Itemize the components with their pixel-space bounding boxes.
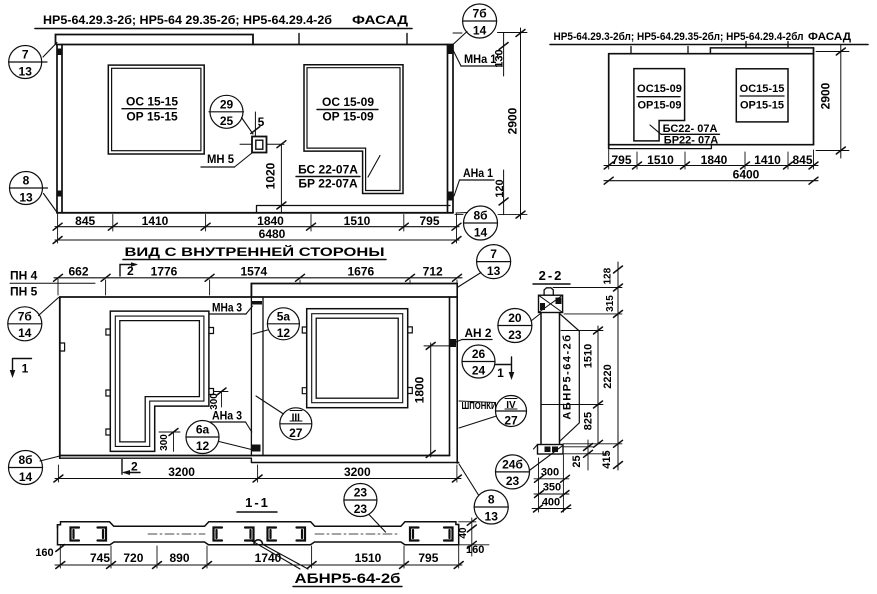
- svg-text:825: 825: [583, 412, 595, 430]
- svg-text:1020: 1020: [264, 162, 278, 189]
- svg-text:350: 350: [543, 482, 561, 494]
- svg-text:БС 22-07А: БС 22-07А: [298, 163, 358, 177]
- svg-text:29: 29: [220, 98, 234, 112]
- svg-text:7б: 7б: [473, 7, 487, 21]
- svg-text:14: 14: [19, 470, 33, 484]
- svg-text:300: 300: [541, 467, 559, 479]
- svg-text:13: 13: [19, 191, 33, 205]
- svg-text:12: 12: [277, 326, 291, 340]
- svg-text:НР5-64.29.3-2бл; НР5-64.29.35-: НР5-64.29.3-2бл; НР5-64.29.35-2бл; НР5-6…: [554, 31, 804, 43]
- svg-text:2-2: 2-2: [539, 268, 564, 283]
- svg-text:1510: 1510: [583, 344, 595, 368]
- svg-text:27: 27: [504, 414, 518, 428]
- svg-text:6480: 6480: [259, 227, 286, 241]
- svg-text:12: 12: [196, 439, 210, 453]
- svg-text:25: 25: [220, 114, 234, 128]
- svg-text:МНа 1': МНа 1': [464, 52, 499, 66]
- svg-text:845: 845: [75, 214, 95, 228]
- svg-text:14: 14: [473, 24, 487, 38]
- svg-text:БС22- 07А: БС22- 07А: [663, 123, 718, 135]
- svg-text:1510: 1510: [344, 214, 371, 228]
- svg-text:НР5-64.29.3-2б; НР5-64 29.35-2: НР5-64.29.3-2б; НР5-64 29.35-2б; НР5-64.…: [43, 13, 332, 27]
- svg-text:1: 1: [22, 362, 29, 376]
- svg-text:14: 14: [474, 226, 488, 240]
- svg-text:АБНР5-64-2б: АБНР5-64-2б: [562, 333, 574, 419]
- svg-text:ВИД С ВНУТРЕННЕЙ СТОРОНЫ: ВИД С ВНУТРЕННЕЙ СТОРОНЫ: [125, 244, 385, 259]
- svg-text:400: 400: [542, 497, 560, 509]
- svg-text:БР 22-07А: БР 22-07А: [298, 177, 358, 191]
- svg-text:13: 13: [19, 65, 33, 79]
- svg-text:27: 27: [289, 426, 303, 440]
- svg-text:8б: 8б: [18, 453, 32, 467]
- svg-text:23: 23: [354, 502, 368, 516]
- svg-text:ОС 15-15: ОС 15-15: [126, 95, 178, 109]
- svg-text:415: 415: [601, 450, 613, 468]
- svg-text:1: 1: [497, 366, 504, 380]
- svg-text:3200: 3200: [168, 465, 195, 479]
- svg-text:40: 40: [458, 527, 469, 539]
- svg-text:1574: 1574: [240, 265, 267, 279]
- svg-text:МН 5: МН 5: [207, 152, 234, 166]
- svg-text:ОР15-09: ОР15-09: [637, 100, 681, 112]
- svg-text:5а: 5а: [277, 310, 291, 324]
- svg-text:160: 160: [466, 544, 484, 556]
- svg-text:6а: 6а: [196, 423, 210, 437]
- svg-text:795: 795: [419, 214, 439, 228]
- svg-text:2: 2: [131, 460, 138, 474]
- svg-text:20: 20: [508, 311, 522, 325]
- svg-text:1840: 1840: [257, 214, 284, 228]
- svg-text:ОС15-15: ОС15-15: [740, 83, 785, 95]
- svg-text:1510: 1510: [355, 551, 382, 565]
- svg-text:1510: 1510: [647, 153, 674, 167]
- svg-text:2220: 2220: [602, 364, 614, 388]
- svg-text:АБНР5-64-2б: АБНР5-64-2б: [295, 570, 401, 586]
- svg-text:845: 845: [792, 153, 812, 167]
- svg-text:ПН 5: ПН 5: [10, 285, 38, 299]
- svg-text:ОС 15-09: ОС 15-09: [322, 95, 374, 109]
- svg-text:ФАСАД: ФАСАД: [808, 31, 851, 43]
- svg-text:8: 8: [23, 174, 30, 188]
- svg-text:23: 23: [354, 486, 368, 500]
- svg-text:1800: 1800: [413, 376, 427, 403]
- svg-text:13: 13: [485, 510, 499, 524]
- svg-text:795: 795: [611, 153, 631, 167]
- svg-text:128: 128: [603, 267, 614, 284]
- svg-text:ФАСАД: ФАСАД: [352, 13, 409, 27]
- svg-text:3200: 3200: [344, 465, 371, 479]
- svg-text:1840: 1840: [701, 153, 728, 167]
- svg-text:720: 720: [123, 551, 143, 565]
- svg-text:1776: 1776: [151, 265, 178, 279]
- svg-text:300: 300: [209, 393, 220, 410]
- svg-text:7: 7: [490, 247, 497, 261]
- svg-text:ОР 15-15: ОР 15-15: [126, 110, 178, 124]
- svg-text:ПН 4: ПН 4: [10, 269, 38, 283]
- svg-text:24б: 24б: [502, 458, 523, 472]
- svg-text:АНа 3: АНа 3: [212, 409, 242, 423]
- svg-text:7: 7: [22, 48, 29, 62]
- svg-text:1676: 1676: [347, 265, 374, 279]
- svg-text:6400: 6400: [733, 168, 760, 182]
- svg-text:8б: 8б: [473, 209, 487, 223]
- svg-text:662: 662: [68, 265, 88, 279]
- svg-text:2: 2: [127, 264, 134, 278]
- svg-text:795: 795: [418, 551, 438, 565]
- svg-text:1410: 1410: [142, 214, 169, 228]
- svg-text:26: 26: [472, 347, 486, 361]
- svg-text:890: 890: [169, 551, 189, 565]
- svg-text:24: 24: [472, 364, 486, 378]
- svg-text:7б: 7б: [18, 310, 32, 324]
- svg-text:1410: 1410: [754, 153, 781, 167]
- svg-text:712: 712: [423, 265, 443, 279]
- svg-text:14: 14: [18, 326, 32, 340]
- svg-text:25: 25: [571, 455, 583, 467]
- svg-text:120: 120: [494, 179, 506, 197]
- svg-text:2900: 2900: [506, 107, 520, 134]
- svg-text:8: 8: [488, 493, 495, 507]
- svg-text:АН 2: АН 2: [465, 326, 492, 340]
- svg-text:ОС15-09: ОС15-09: [637, 83, 682, 95]
- svg-text:23: 23: [508, 328, 522, 342]
- svg-text:АНа 1: АНа 1: [463, 166, 493, 180]
- svg-text:13: 13: [487, 264, 501, 278]
- svg-text:ОР15-15: ОР15-15: [740, 100, 784, 112]
- svg-text:III: III: [292, 413, 301, 424]
- svg-text:315: 315: [605, 295, 616, 312]
- svg-text:23: 23: [506, 474, 520, 488]
- svg-text:БР22- 07А: БР22- 07А: [664, 135, 718, 147]
- svg-text:160: 160: [35, 547, 53, 559]
- svg-text:ОР 15-09: ОР 15-09: [322, 110, 374, 124]
- svg-text:МНа 3: МНа 3: [212, 301, 242, 315]
- svg-text:2900: 2900: [818, 82, 832, 109]
- svg-text:300: 300: [159, 434, 170, 451]
- svg-text:1-1: 1-1: [245, 495, 270, 510]
- svg-text:745: 745: [90, 551, 110, 565]
